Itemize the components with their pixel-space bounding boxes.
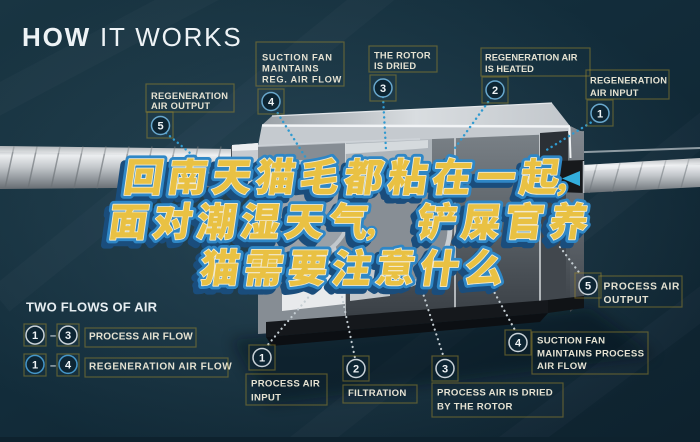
- svg-text:PROCESS AIR FLOW: PROCESS AIR FLOW: [89, 332, 193, 343]
- svg-text:1: 1: [597, 108, 603, 120]
- svg-text:REGENERATION AIR FLOW: REGENERATION AIR FLOW: [89, 362, 232, 373]
- svg-text:–: –: [50, 360, 56, 372]
- svg-text:5: 5: [585, 281, 591, 293]
- svg-text:2: 2: [353, 364, 359, 376]
- svg-text:1: 1: [32, 359, 38, 371]
- svg-text:FILTRATION: FILTRATION: [348, 388, 407, 399]
- svg-text:3: 3: [442, 364, 448, 376]
- svg-text:2: 2: [492, 85, 498, 97]
- svg-text:4: 4: [65, 359, 72, 371]
- svg-text:5: 5: [157, 121, 163, 133]
- svg-text:3: 3: [65, 330, 71, 342]
- svg-text:1: 1: [259, 353, 265, 365]
- svg-text:1: 1: [32, 330, 38, 342]
- svg-text:3: 3: [380, 83, 386, 95]
- svg-text:TWO FLOWS OF AIR: TWO FLOWS OF AIR: [26, 300, 158, 315]
- svg-text:4: 4: [515, 338, 522, 350]
- svg-text:4: 4: [268, 97, 275, 109]
- svg-text:–: –: [50, 330, 56, 342]
- svg-text:HOW IT WORKS: HOW IT WORKS: [22, 22, 242, 52]
